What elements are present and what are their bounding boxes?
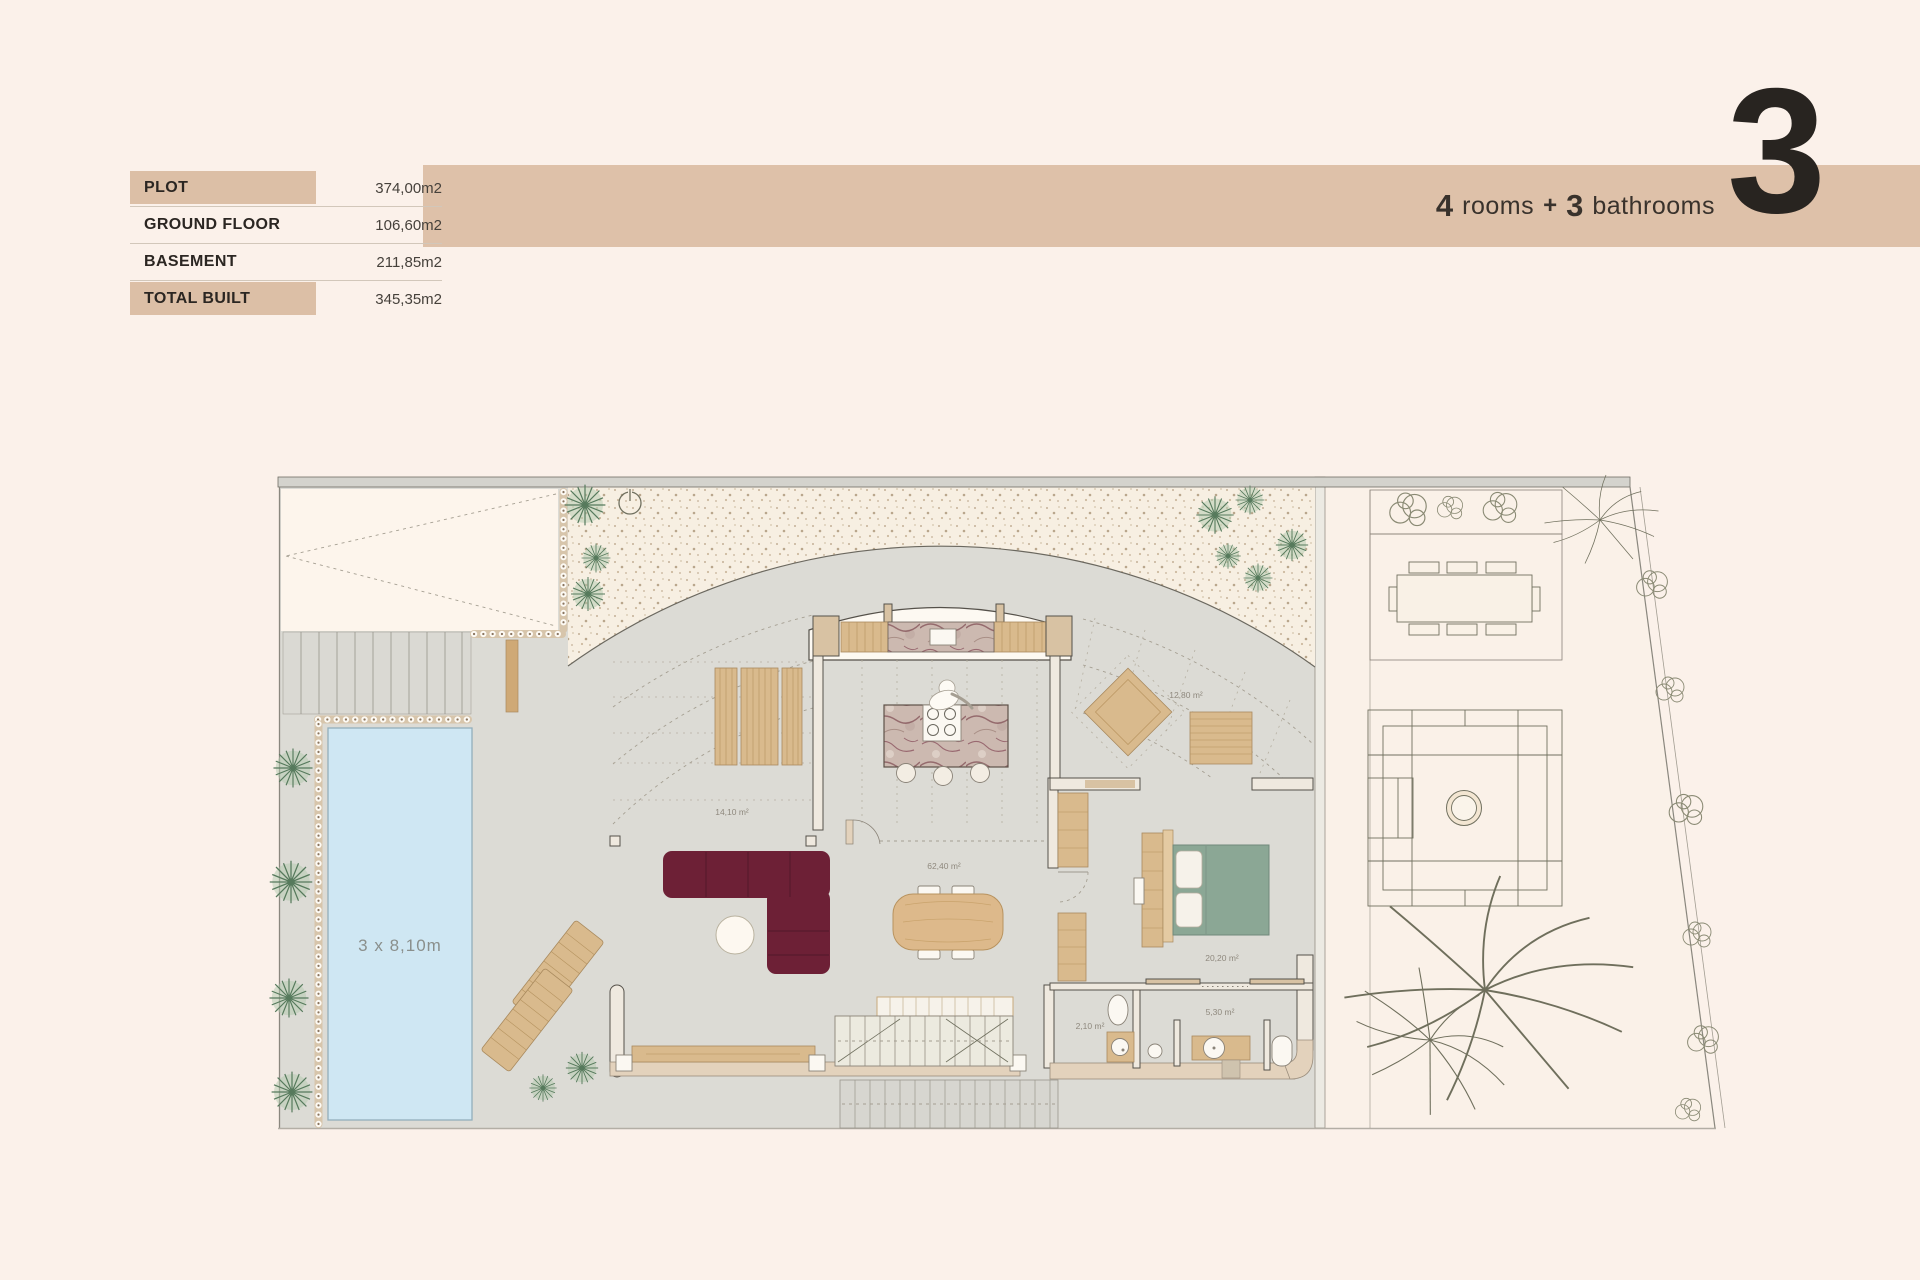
bed	[1134, 830, 1269, 947]
basin	[1108, 995, 1128, 1025]
pool: 3 x 8,10m	[328, 728, 472, 1120]
coffee-table	[716, 916, 754, 954]
dining-table	[893, 886, 1003, 959]
label-covered-terrace: 14,10 m²	[715, 807, 749, 817]
label-toilet: 2,10 m²	[1076, 1021, 1105, 1031]
row-value: 345,35m2	[375, 291, 442, 308]
label-bedroom: 20,20 m²	[1205, 953, 1239, 963]
shower-drain	[1148, 1044, 1162, 1058]
label-living: 62,40 m²	[927, 861, 961, 871]
wood-step	[506, 640, 518, 712]
driveway	[281, 489, 558, 631]
terrace-door	[846, 820, 853, 844]
brochure-page: 4 rooms + 3 bathrooms 3 PLOT 374,00m2 GR…	[0, 0, 1920, 1280]
row-value: 211,85m2	[376, 254, 442, 271]
row-value: 374,00m2	[375, 180, 442, 197]
row-value: 106,60m2	[375, 217, 442, 234]
outdoor-bench	[1190, 712, 1252, 764]
label-bathroom: 5,30 m²	[1206, 1007, 1235, 1017]
garden-wall	[1315, 477, 1325, 1128]
top-wall	[278, 477, 1630, 487]
kitchen-left-wall	[813, 656, 823, 830]
label-terrace: 12,80 m²	[1169, 690, 1203, 700]
exterior-stairs	[840, 1080, 1058, 1128]
row-label: GROUND FLOOR	[130, 216, 280, 234]
row-label: TOTAL BUILT	[130, 290, 250, 308]
kitchen-right-wall	[1050, 656, 1060, 778]
pool-size-label: 3 x 8,10m	[358, 936, 442, 955]
row-label: PLOT	[130, 179, 188, 197]
pillar-left	[813, 616, 839, 656]
kitchen-sink	[930, 629, 956, 645]
row-label: BASEMENT	[130, 253, 237, 271]
pillar-right	[1046, 616, 1072, 656]
toilet	[1272, 1036, 1292, 1066]
floor-plan: 3 x 8,10m	[0, 0, 1920, 1280]
